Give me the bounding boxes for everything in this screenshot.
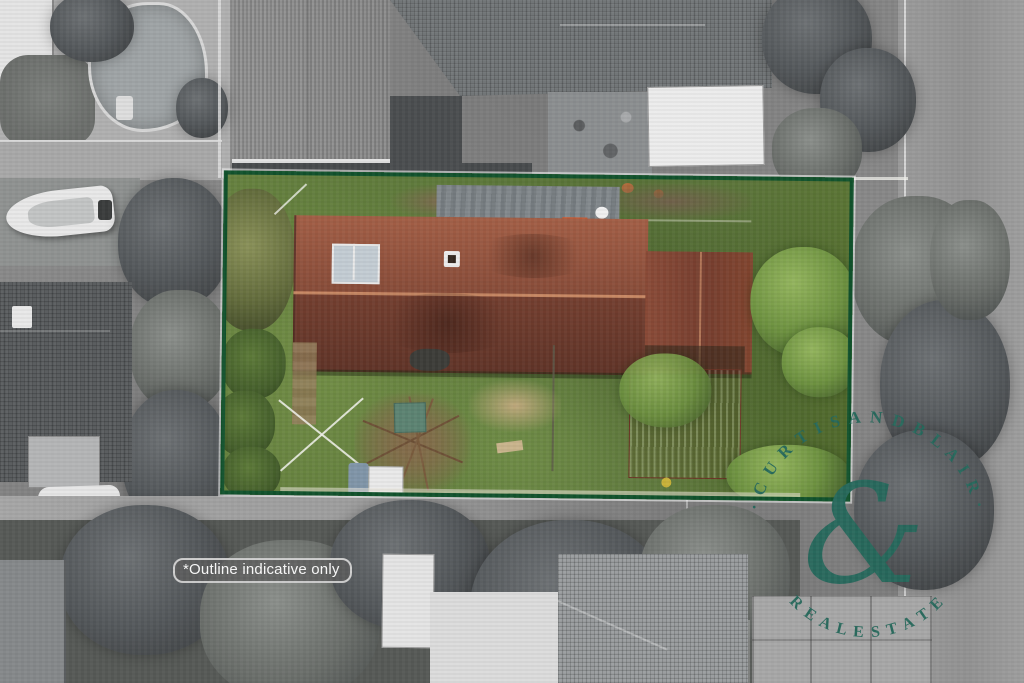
- patio-shadow: [390, 96, 462, 174]
- side-path: [0, 140, 222, 180]
- skylight: [12, 306, 32, 328]
- white-shed: [647, 85, 764, 167]
- fence-line: [218, 0, 221, 178]
- carport: [28, 436, 100, 488]
- tree: [118, 178, 230, 308]
- fence-line: [852, 177, 908, 180]
- outboard-motor: [98, 200, 112, 220]
- palm-tree: [50, 0, 134, 62]
- outline-disclaimer-text: *Outline indicative only: [183, 561, 340, 578]
- aerial-property-photo: · C U R T I S A N D B L A I R · R E A L …: [0, 0, 1024, 683]
- outline-disclaimer-label: *Outline indicative only: [173, 558, 352, 583]
- watermark-ampersand: &: [803, 454, 926, 615]
- tree: [930, 200, 1010, 320]
- hip-ridge: [560, 24, 705, 26]
- agency-watermark: · C U R T I S A N D B L A I R · R E A L …: [712, 378, 1022, 683]
- neighbor-metal-roof: [232, 0, 390, 163]
- white-shed: [382, 554, 435, 649]
- roof-seam: [307, 0, 309, 163]
- neighbor-white-wing: [430, 592, 558, 683]
- pool-steps: [116, 96, 133, 120]
- cluttered-patio: [548, 92, 652, 176]
- roof-ridge: [0, 330, 110, 332]
- neighbor-garden-bed: [0, 55, 95, 147]
- neighbor-roof-corner: [0, 560, 66, 683]
